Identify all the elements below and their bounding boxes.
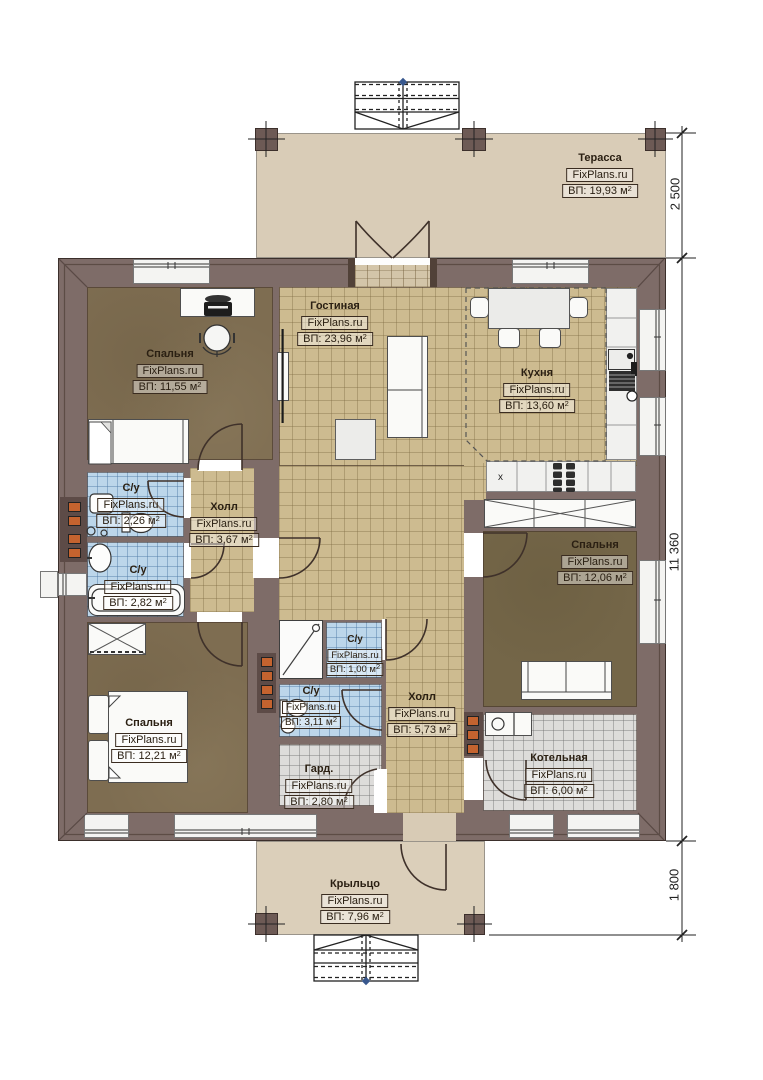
svg-text:x: x [498, 472, 503, 483]
